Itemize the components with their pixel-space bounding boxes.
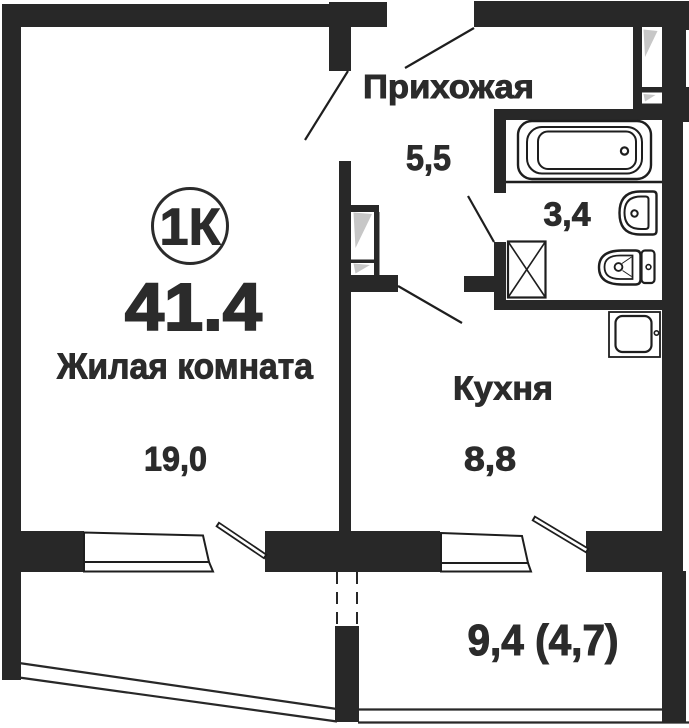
svg-text:8,8: 8,8	[464, 441, 516, 479]
svg-text:5,5: 5,5	[406, 139, 451, 178]
svg-text:1К: 1К	[160, 199, 221, 257]
svg-text:Жилая комната: Жилая комната	[56, 346, 314, 387]
svg-text:Кухня: Кухня	[453, 370, 553, 407]
svg-text:9,4 (4,7): 9,4 (4,7)	[468, 616, 619, 665]
svg-text:3,4: 3,4	[544, 196, 592, 233]
svg-text:19,0: 19,0	[144, 441, 207, 479]
svg-text:41.4: 41.4	[125, 270, 262, 345]
svg-text:Прихожая: Прихожая	[363, 68, 534, 105]
